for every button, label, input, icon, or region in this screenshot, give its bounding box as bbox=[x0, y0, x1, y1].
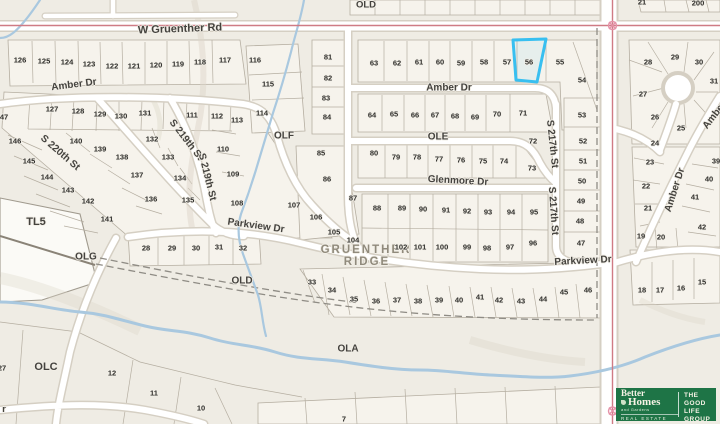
map-graphics bbox=[0, 0, 720, 424]
leaf-icon bbox=[621, 400, 626, 405]
brokerage-logo: Better Homes and Gardens REAL ESTATE THE… bbox=[616, 388, 716, 421]
logo-brand-sub: and Gardens bbox=[621, 407, 678, 412]
map-canvas[interactable]: W Gruenther RdAmber DrAmber DrGlenmore D… bbox=[0, 0, 720, 424]
logo-brand-tag: REAL ESTATE bbox=[621, 414, 678, 421]
logo-brand: Better Homes and Gardens REAL ESTATE bbox=[616, 388, 678, 421]
logo-brand-line2: Homes bbox=[621, 397, 678, 407]
logo-group-name: THE GOOD LIFE GROUP bbox=[679, 388, 716, 421]
